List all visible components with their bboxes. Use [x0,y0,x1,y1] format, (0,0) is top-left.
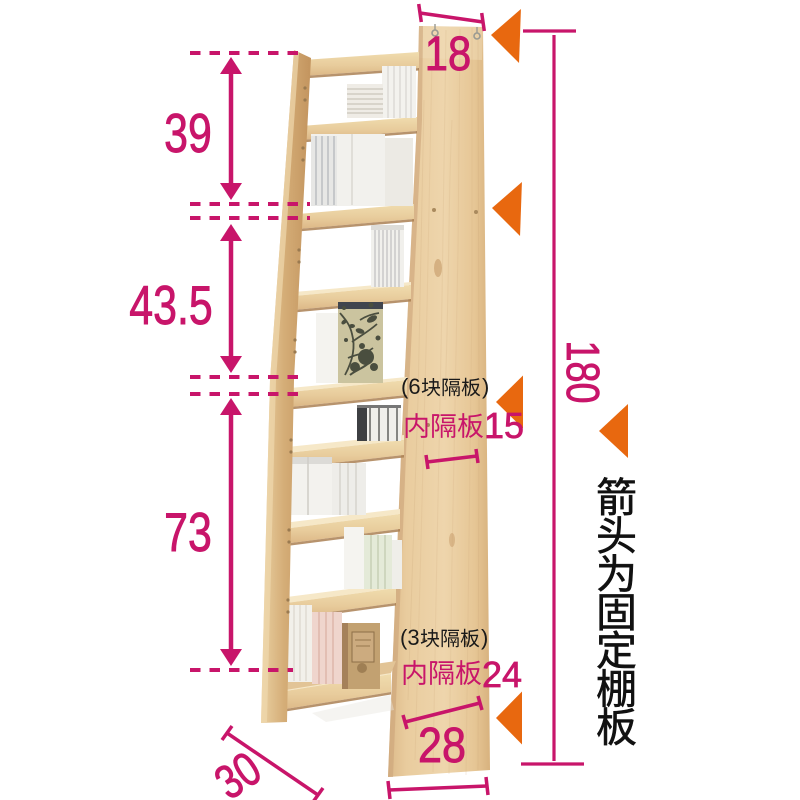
svg-text:): ) [482,374,489,399]
svg-text:): ) [481,625,488,650]
svg-text:24: 24 [482,654,522,695]
svg-text:39: 39 [164,103,212,164]
svg-text:30: 30 [206,742,271,800]
svg-text:18: 18 [425,26,471,80]
svg-text:73: 73 [164,502,212,563]
svg-text:15: 15 [484,405,524,446]
svg-text:28: 28 [418,717,466,772]
svg-text:(6: (6 [401,374,421,399]
svg-text:43.5: 43.5 [129,275,212,336]
svg-text:180: 180 [557,341,608,404]
svg-text:(3: (3 [400,625,420,650]
